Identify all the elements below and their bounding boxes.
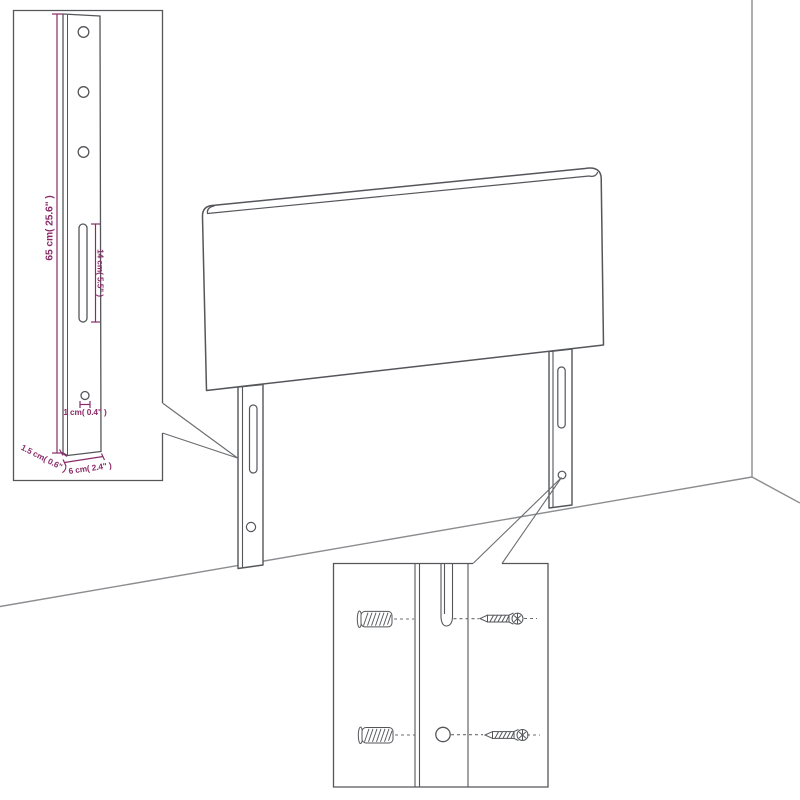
post-hole-1	[78, 27, 89, 38]
leg-detail-callout: 65 cm( 25.6" ) 14 cm( 5.5" ) 1 cm( 0.4" …	[14, 11, 163, 481]
dim-hole-label: 1 cm( 0.4" )	[63, 407, 107, 417]
dim-height-label: 65 cm( 25.6" )	[45, 195, 56, 260]
wall-plug-icon	[357, 611, 392, 627]
strip-hole	[436, 727, 450, 741]
headboard-outline	[202, 168, 603, 390]
callout-pointer-left	[163, 403, 238, 458]
post-slot	[79, 224, 87, 322]
wall-plug-icon	[358, 727, 393, 743]
left-leg-hole	[246, 522, 255, 531]
mounting-detail-callout	[334, 564, 549, 788]
left-leg	[238, 385, 263, 569]
floor-line-right	[752, 477, 800, 503]
diagram-canvas: 65 cm( 25.6" ) 14 cm( 5.5" ) 1 cm( 0.4" …	[0, 0, 800, 800]
post-hole-3	[78, 147, 89, 158]
post-small-hole	[81, 392, 89, 400]
headboard-panel	[202, 168, 603, 390]
left-leg-slot	[250, 405, 258, 473]
post-hole-2	[78, 87, 89, 98]
right-leg	[549, 349, 572, 508]
dim-slot-label: 14 cm( 5.5" )	[96, 249, 106, 297]
callout-pointer-bottom	[473, 478, 562, 564]
right-leg-slot	[558, 367, 565, 428]
right-leg-hole	[558, 471, 566, 479]
